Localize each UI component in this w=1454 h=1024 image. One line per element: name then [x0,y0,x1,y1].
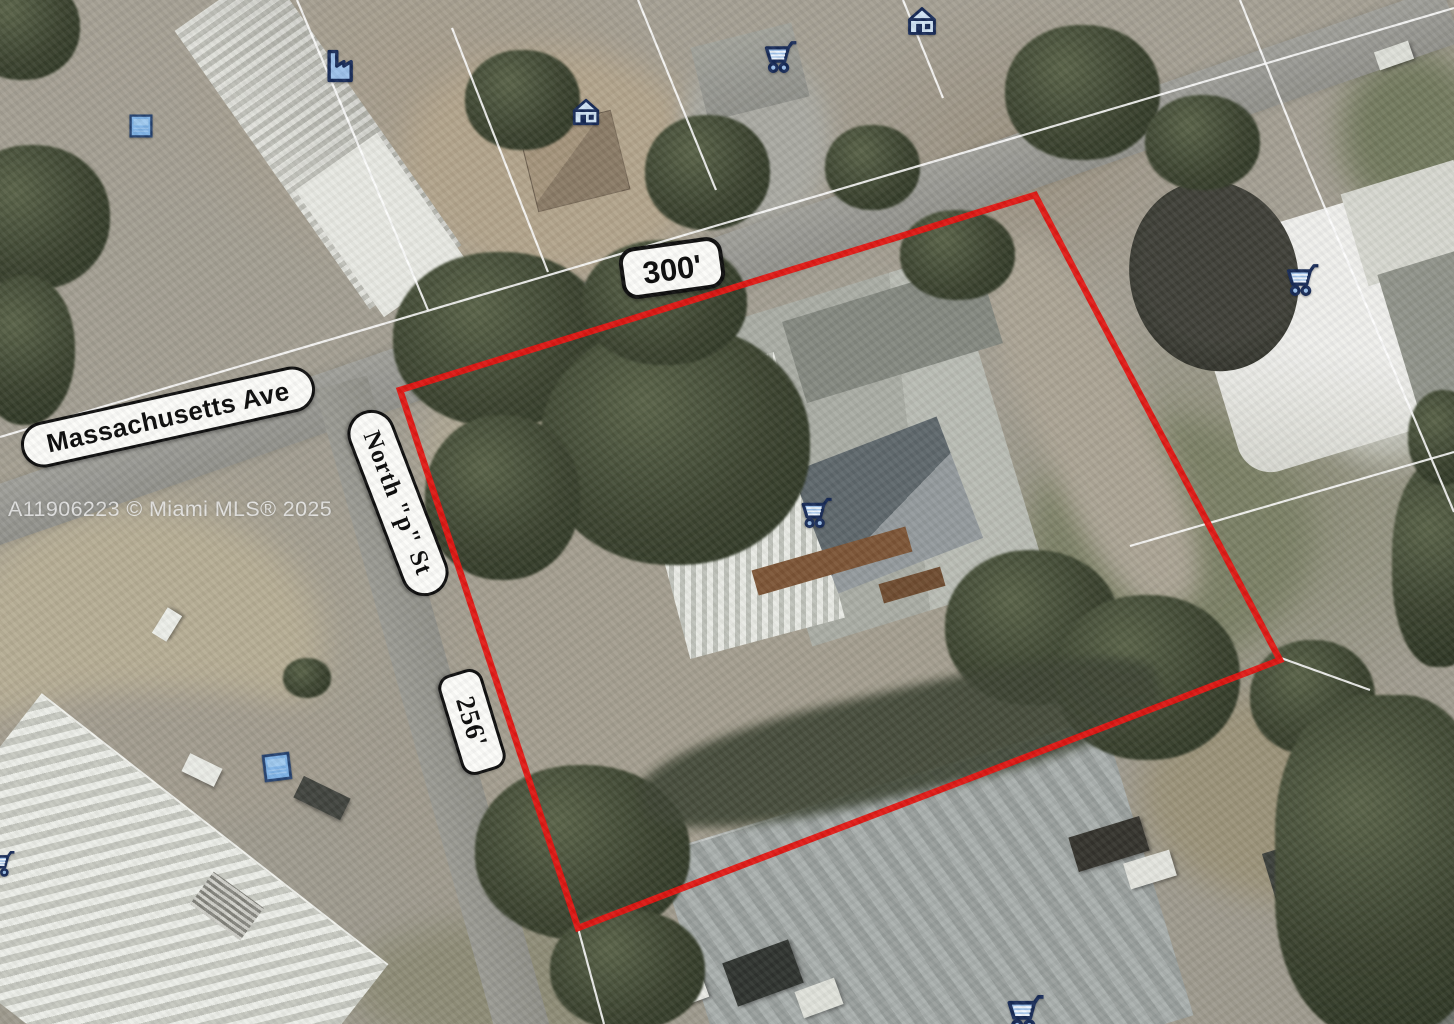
cart-icon [1002,988,1050,1024]
cart-icon [797,492,837,532]
mls-watermark: A11906223 © Miami MLS® 2025 [8,497,332,522]
house-icon [903,2,941,40]
cart-icon [760,35,802,77]
house-icon [568,94,604,130]
cart-icon [1282,258,1324,300]
cart-icon [0,846,19,880]
square-icon [257,747,297,787]
square-icon [126,111,156,141]
factory-icon [319,44,363,88]
aerial-parcel-map[interactable]: Massachusetts Ave North "p" St 300' 256'… [0,0,1454,1024]
